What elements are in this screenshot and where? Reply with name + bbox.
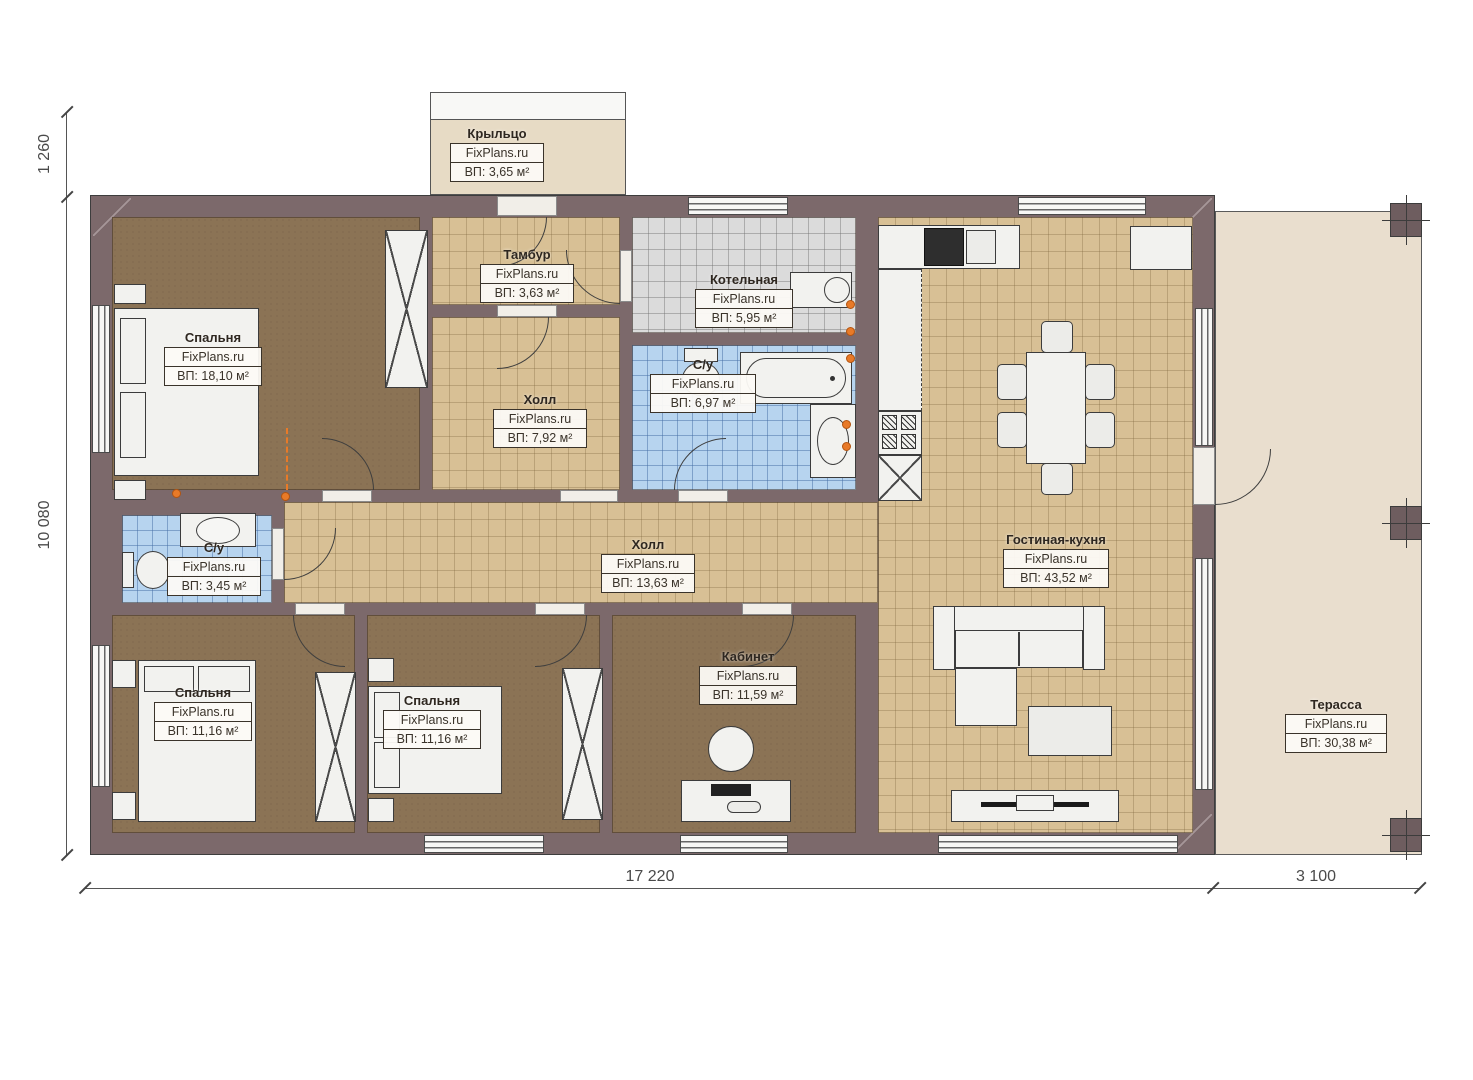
sofa-armrest [1083, 606, 1105, 670]
chair [1085, 364, 1115, 400]
watermark: FixPlans.ru [451, 144, 543, 163]
room-area: ВП: 5,95 м² [696, 309, 792, 327]
room-label-bedroom-2: Спальня FixPlans.ruВП: 11,16 м² [154, 685, 252, 741]
door-office [742, 603, 792, 615]
window [1195, 308, 1213, 446]
watermark: FixPlans.ru [165, 348, 261, 367]
room-label-living-kitchen: Гостиная-кухня FixPlans.ruВП: 43,52 м² [1003, 532, 1109, 588]
chair [1085, 412, 1115, 448]
window [1018, 197, 1146, 215]
room-name: Терасса [1310, 697, 1362, 712]
kitchen-sink [924, 228, 964, 266]
radiator-symbol [846, 327, 855, 336]
watermark: FixPlans.ru [384, 711, 480, 730]
chair [997, 412, 1027, 448]
door-bathroom-main [678, 490, 728, 502]
nightstand [368, 658, 394, 682]
room-name: Холл [632, 537, 665, 552]
door-boiler [620, 250, 632, 302]
door-terrace [1193, 447, 1215, 505]
burner [901, 434, 916, 449]
room-area: ВП: 3,45 м² [168, 577, 260, 595]
dimension-tick [61, 106, 73, 118]
room-name: С/у [693, 357, 713, 372]
nightstand [114, 480, 146, 500]
kitchen-basin [966, 230, 996, 264]
door-bedroom-3 [535, 603, 585, 615]
room-name: Спальня [175, 685, 231, 700]
radiator-symbol [842, 420, 851, 429]
dimension-tick [61, 191, 73, 203]
door-bedroom-1 [322, 490, 372, 502]
window [1195, 558, 1213, 790]
nightstand [368, 798, 394, 822]
watermark: FixPlans.ru [155, 703, 251, 722]
room-label-bedroom-1: Спальня FixPlans.ruВП: 18,10 м² [164, 330, 262, 386]
room-name: С/у [204, 540, 224, 555]
wardrobe [315, 672, 356, 822]
window [92, 305, 110, 453]
coffee-table [1028, 706, 1112, 756]
dimension-tick [61, 849, 73, 861]
room-area: ВП: 7,92 м² [494, 429, 586, 447]
dimension-porch-depth: 1 260 [36, 126, 52, 182]
chair [1041, 321, 1073, 353]
entrance-door [497, 196, 557, 216]
dimension-house-depth: 10 080 [36, 497, 52, 553]
toilet [136, 551, 170, 589]
window [688, 197, 788, 215]
chair [1041, 463, 1073, 495]
keyboard [727, 801, 761, 813]
room-name: Спальня [404, 693, 460, 708]
room-label-tambur: Тамбур FixPlans.ruВП: 3,63 м² [480, 247, 574, 303]
kitchen-cabinet [878, 455, 922, 501]
office-chair [708, 726, 754, 772]
door-bedroom-2 [295, 603, 345, 615]
door-tambur-hall [497, 305, 557, 317]
radiator-symbol [281, 492, 290, 501]
watermark: FixPlans.ru [168, 558, 260, 577]
radiator-symbol [172, 489, 181, 498]
pillow [120, 318, 146, 384]
porch-step [430, 92, 626, 120]
opening-hall [560, 490, 618, 502]
room-area: ВП: 11,16 м² [155, 722, 251, 740]
watermark: FixPlans.ru [1286, 715, 1386, 734]
room-area: ВП: 11,16 м² [384, 730, 480, 748]
sofa-back [933, 606, 1105, 632]
fridge [1130, 226, 1192, 270]
radiator-symbol [846, 354, 855, 363]
room-name: Гостиная-кухня [1006, 532, 1106, 547]
watermark: FixPlans.ru [696, 290, 792, 309]
dimension-terrace-width: 3 100 [1276, 868, 1356, 884]
room-area: ВП: 3,65 м² [451, 163, 543, 181]
room-label-hall-central: Холл FixPlans.ruВП: 13,63 м² [601, 537, 695, 593]
window [424, 835, 544, 853]
dimension-line-bottom [85, 888, 1420, 889]
wardrobe [562, 668, 603, 820]
terrace-post [1390, 203, 1422, 237]
window [92, 645, 110, 787]
window [680, 835, 788, 853]
room-label-office: Кабинет FixPlans.ruВП: 11,59 м² [699, 649, 797, 705]
sofa-chaise [955, 668, 1017, 726]
room-label-hall-small: Холл FixPlans.ruВП: 7,92 м² [493, 392, 587, 448]
nightstand [112, 660, 136, 688]
room-name: Холл [524, 392, 557, 407]
chair [997, 364, 1027, 400]
wardrobe [385, 230, 428, 388]
room-area: ВП: 6,97 м² [651, 394, 755, 412]
monitor [711, 784, 751, 796]
heating-pipe [286, 428, 288, 490]
dimension-line-left [66, 112, 67, 855]
floor-plan: Крыльцо FixPlans.ruВП: 3,65 м² Тамбур Fi… [0, 0, 1473, 1080]
door-bathroom-small [272, 528, 284, 580]
room-area: ВП: 3,63 м² [481, 284, 573, 302]
room-label-bathroom-main: С/у FixPlans.ruВП: 6,97 м² [650, 357, 756, 413]
room-label-bathroom-small: С/у FixPlans.ruВП: 3,45 м² [167, 540, 261, 596]
room-area: ВП: 18,10 м² [165, 367, 261, 385]
sofa-seam [1018, 632, 1020, 666]
terrace-post [1390, 506, 1422, 540]
room-name: Тамбур [503, 247, 550, 262]
watermark: FixPlans.ru [1004, 550, 1108, 569]
radiator-symbol [842, 442, 851, 451]
watermark: FixPlans.ru [602, 555, 694, 574]
pillow [120, 392, 146, 458]
room-name: Крыльцо [467, 126, 526, 141]
dining-table [1026, 352, 1086, 464]
kitchen-counter [878, 269, 922, 411]
sofa-armrest [933, 606, 955, 670]
nightstand [114, 284, 146, 304]
room-area: ВП: 13,63 м² [602, 574, 694, 592]
burner [901, 415, 916, 430]
room-label-bedroom-3: Спальня FixPlans.ruВП: 11,16 м² [383, 693, 481, 749]
radiator-symbol [846, 300, 855, 309]
room-name: Котельная [710, 272, 778, 287]
room-name: Кабинет [722, 649, 775, 664]
room-area: ВП: 30,38 м² [1286, 734, 1386, 752]
watermark: FixPlans.ru [481, 265, 573, 284]
room-name: Спальня [185, 330, 241, 345]
toilet-tank [122, 552, 134, 588]
room-area: ВП: 11,59 м² [700, 686, 796, 704]
room-area: ВП: 43,52 м² [1004, 569, 1108, 587]
terrace-post [1390, 818, 1422, 852]
dimension-house-width: 17 220 [610, 868, 690, 884]
room-label-porch: Крыльцо FixPlans.ruВП: 3,65 м² [450, 126, 544, 182]
watermark: FixPlans.ru [651, 375, 755, 394]
tv-console [1016, 795, 1054, 811]
room-label-terrace: Терасса FixPlans.ruВП: 30,38 м² [1285, 697, 1387, 753]
watermark: FixPlans.ru [494, 410, 586, 429]
room-label-boiler: Котельная FixPlans.ruВП: 5,95 м² [695, 272, 793, 328]
bathtub-drain [830, 376, 835, 381]
burner [882, 415, 897, 430]
window [938, 835, 1178, 853]
watermark: FixPlans.ru [700, 667, 796, 686]
burner [882, 434, 897, 449]
floor-hall-central [284, 502, 878, 603]
nightstand [112, 792, 136, 820]
washer-drum [824, 277, 850, 303]
